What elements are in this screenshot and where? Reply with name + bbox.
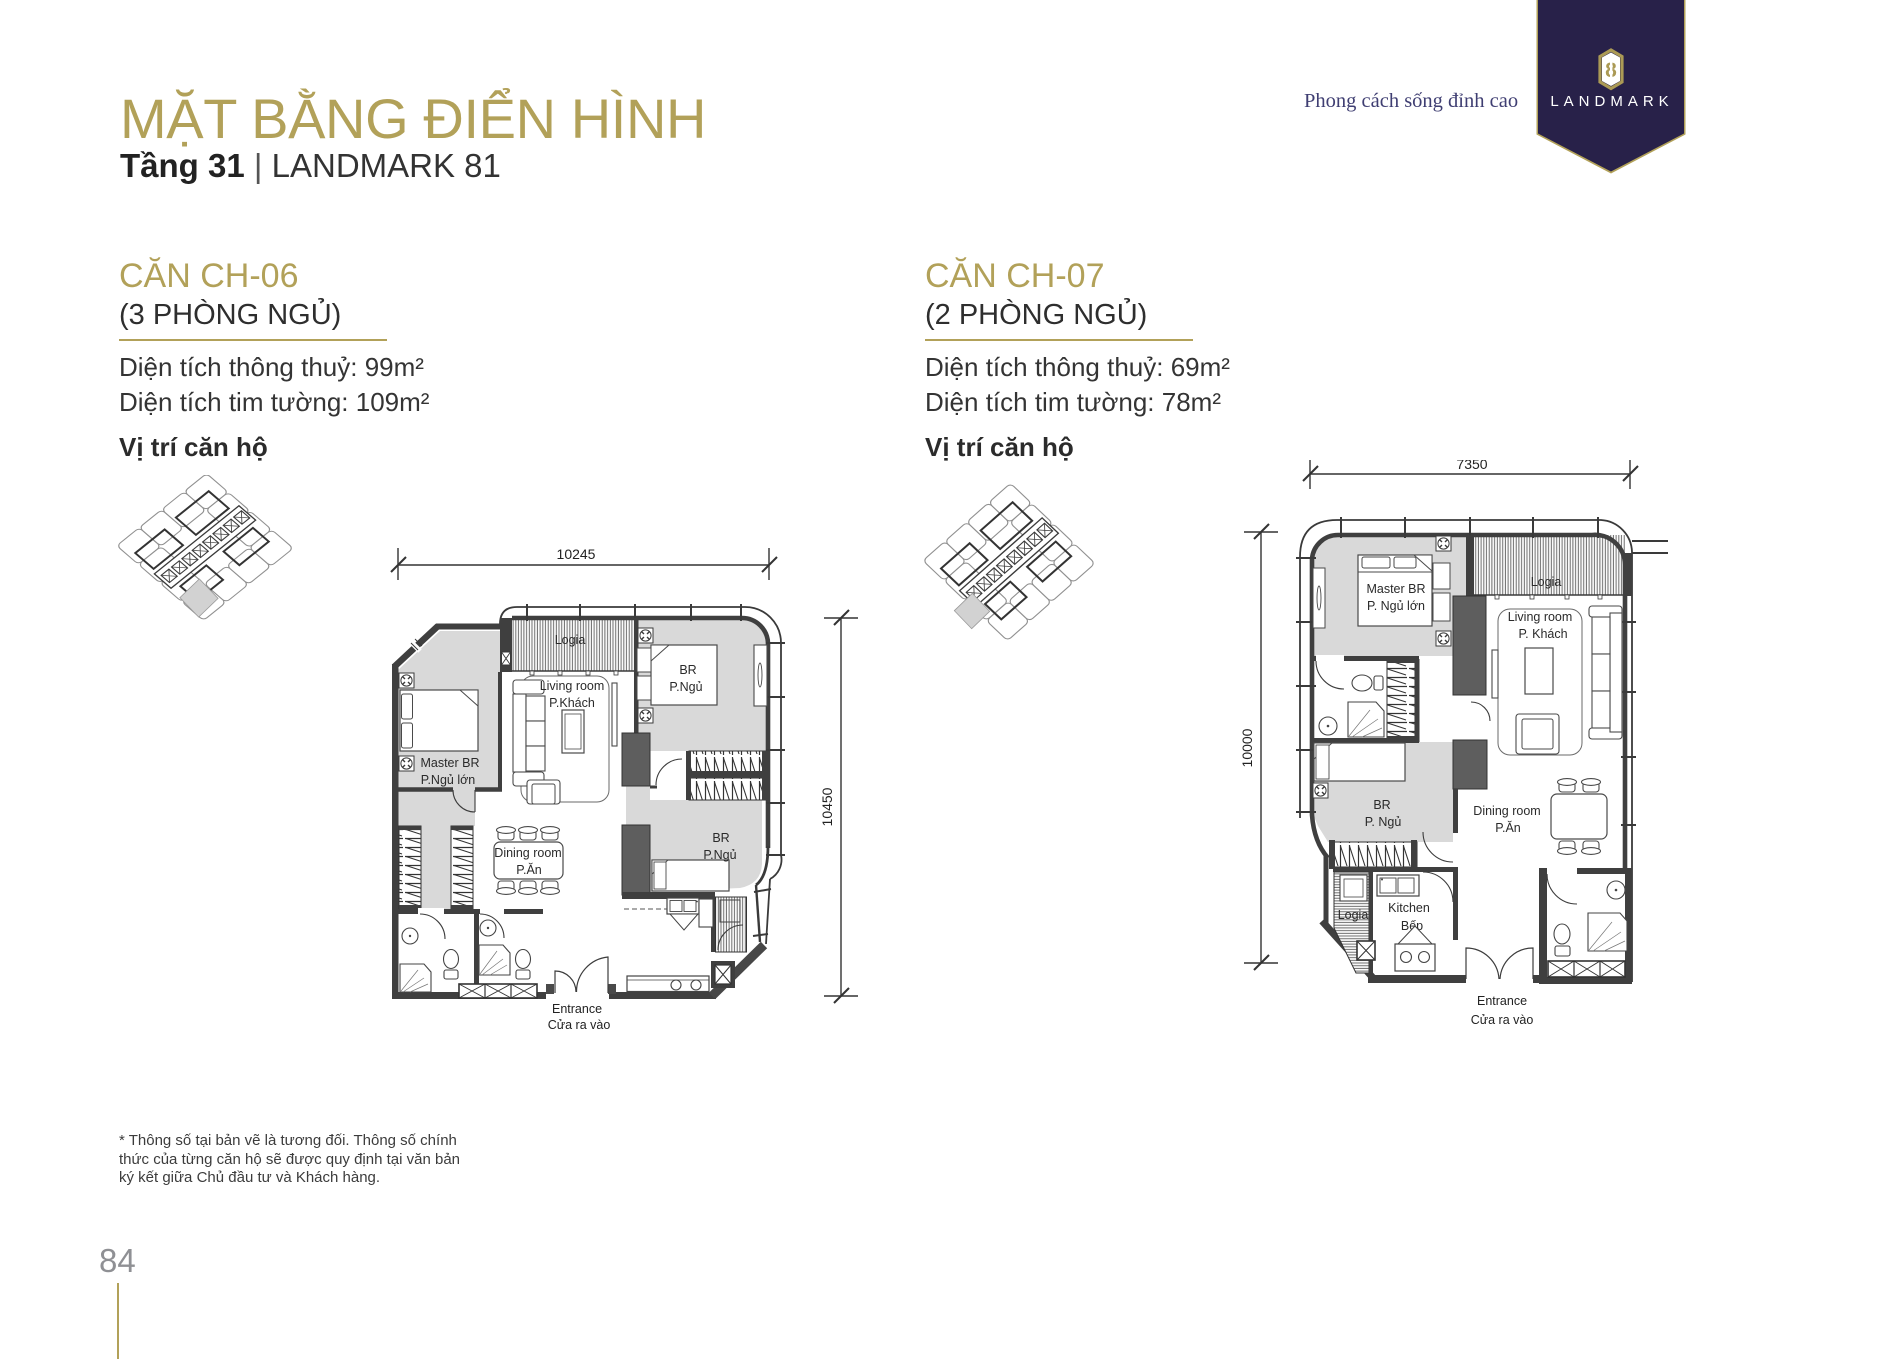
svg-text:Entrance: Entrance	[552, 1002, 602, 1016]
svg-text:P. Khách: P. Khách	[1518, 627, 1567, 641]
svg-text:Master BR: Master BR	[420, 756, 479, 770]
svg-text:Kitchen: Kitchen	[1388, 901, 1430, 915]
svg-text:Logia: Logia	[1531, 575, 1562, 589]
svg-text:P.Ngủ: P.Ngủ	[703, 848, 736, 862]
svg-text:Logia: Logia	[555, 633, 586, 647]
svg-text:BR: BR	[712, 831, 729, 845]
svg-text:Living room: Living room	[540, 679, 605, 693]
svg-text:BR: BR	[679, 663, 696, 677]
svg-text:10245: 10245	[557, 546, 596, 562]
svg-text:Master BR: Master BR	[1366, 582, 1425, 596]
svg-text:Cửa ra vào: Cửa ra vào	[548, 1018, 611, 1032]
svg-text:Dining room: Dining room	[1473, 804, 1540, 818]
svg-text:Dining room: Dining room	[494, 846, 561, 860]
svg-text:P. Ngủ lớn: P. Ngủ lớn	[1367, 599, 1425, 613]
svg-text:BR: BR	[1373, 798, 1390, 812]
svg-text:7350: 7350	[1456, 460, 1487, 472]
svg-text:10450: 10450	[819, 787, 835, 826]
svg-text:10000: 10000	[1240, 728, 1255, 767]
svg-text:Logia: Logia	[1338, 908, 1369, 922]
svg-text:LANDMARK: LANDMARK	[1550, 93, 1673, 110]
svg-text:P.Ngủ lớn: P.Ngủ lớn	[421, 773, 476, 787]
svg-text:P.Ăn: P.Ăn	[516, 862, 542, 877]
svg-text:P.Ngủ: P.Ngủ	[669, 680, 702, 694]
svg-text:P.Khách: P.Khách	[549, 696, 595, 710]
svg-text:P.Ăn: P.Ăn	[1495, 820, 1521, 835]
svg-text:P. Ngủ: P. Ngủ	[1365, 815, 1402, 829]
svg-text:Entrance: Entrance	[1477, 994, 1527, 1008]
svg-text:Cửa ra vào: Cửa ra vào	[1471, 1013, 1534, 1027]
svg-text:Living room: Living room	[1508, 610, 1573, 624]
